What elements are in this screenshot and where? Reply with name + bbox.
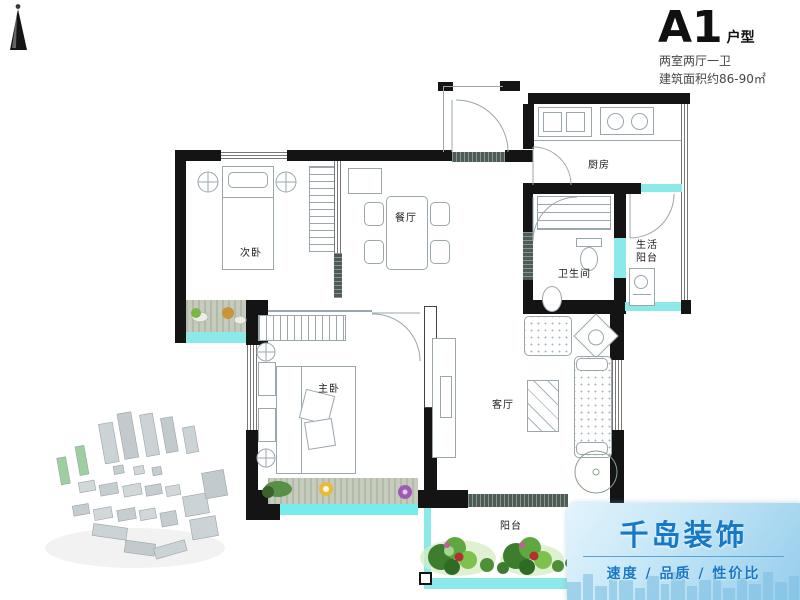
site-model-illustration <box>25 398 240 578</box>
room-label-living: 客厅 <box>492 399 514 412</box>
utility-balcony-line2: 阳台 <box>636 252 658 265</box>
room-label-dining: 餐厅 <box>395 212 417 225</box>
brand-tagline: 速度 / 品质 / 性价比 <box>567 563 800 583</box>
room-label-balcony: 阳台 <box>500 520 522 533</box>
room-label-master-bedroom: 主卧 <box>318 383 340 396</box>
room-label-utility-balcony: 生活 阳台 <box>636 239 658 265</box>
floorplan-page: A1 户型 两室两厅一卫 建筑面积约86-90㎡ <box>0 0 800 600</box>
room-label-bathroom: 卫生间 <box>558 268 591 281</box>
utility-balcony-line1: 生活 <box>636 239 658 252</box>
room-label-kitchen: 厨房 <box>588 159 610 172</box>
room-label-secondary-bedroom: 次卧 <box>240 247 262 260</box>
brand-divider <box>583 556 784 557</box>
brand-panel: 千岛装饰 速度 / 品质 / 性价比 <box>567 503 800 600</box>
brand-name: 千岛装饰 <box>567 512 800 554</box>
